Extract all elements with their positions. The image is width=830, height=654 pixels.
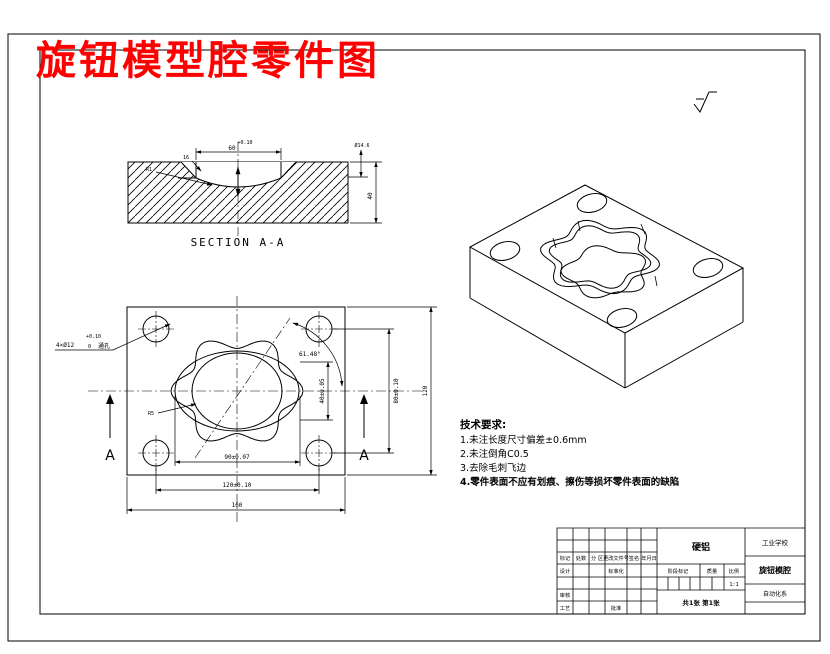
tb-part-name: 旋钮模腔 <box>758 565 791 575</box>
angle-label: 61.48° <box>299 351 321 358</box>
tech-req-item-3: 3.去除毛刺飞边 <box>460 462 527 474</box>
tb-mark: 标记 <box>560 554 570 562</box>
tb-zone: 分 区 <box>591 554 603 562</box>
dim-height-mid: 80±0.10 <box>393 378 400 404</box>
dim-height-inner: 40±0.05 <box>319 378 326 404</box>
section-dim-height: 40 <box>350 162 382 223</box>
iso-cavity-outline <box>528 215 673 299</box>
tb-change-doc: 更改文件号 <box>603 554 629 562</box>
tb-scale-value: 1:1 <box>729 582 738 588</box>
dim-width-mid: 120±0.10 <box>223 482 252 489</box>
tb-scale-label: 比例 <box>729 567 739 575</box>
dim-width-value: 60 <box>228 145 236 152</box>
tb-sheet-info: 共1张 第1张 <box>682 598 720 607</box>
surface-roughness-icon <box>694 92 717 112</box>
section-caption: SECTION A-A <box>191 236 286 249</box>
tb-school: 工业学校 <box>762 538 789 547</box>
tb-weight-label: 质量 <box>707 567 717 575</box>
isometric-view <box>470 185 743 388</box>
tb-process: 工艺 <box>560 605 570 612</box>
dim-width-tolerance: +0.10 <box>237 140 252 146</box>
page-title: 旋钮模型腔零件图 <box>36 37 380 84</box>
tb-material: 硬铝 <box>692 541 710 553</box>
holes-leader: +0.10 4×Ø12 0 通孔 <box>55 324 170 350</box>
iso-cavity-bottom <box>549 237 668 309</box>
holes-callout: 4×Ø12 <box>56 342 74 349</box>
tb-department: 自动化系 <box>763 590 787 598</box>
tb-stage-label: 阶段标记 <box>668 567 689 575</box>
tb-standardization: 标准化 <box>608 567 624 575</box>
cad-drawing: 旋钮模型腔零件图 +0.10 60 16 R1 <box>0 0 830 654</box>
front-radius-label: R5 <box>148 411 154 417</box>
holes-note: 通孔 <box>98 342 110 350</box>
tb-date: 年月日 <box>641 554 657 562</box>
dim-height-outer: 120 <box>422 385 429 396</box>
iso-bolt-holes <box>488 191 724 331</box>
section-view: +0.10 60 16 R1 Ø14.6 40 SECTION A-A <box>128 140 382 249</box>
drawing-sheet: 旋钮模型腔零件图 +0.10 60 16 R1 <box>0 0 830 654</box>
holes-tolerance-bottom: 0 <box>88 344 91 350</box>
tech-req-item-1: 1.未注长度尺寸偏差±0.6mm <box>460 434 587 446</box>
tb-approve: 批准 <box>611 604 621 612</box>
tb-signature: 签名 <box>629 554 639 562</box>
section-dim-step: Ø14.6 <box>348 142 370 177</box>
step-dim-label: Ø14.6 <box>354 142 369 149</box>
dim-width-outer: 160 <box>232 502 243 509</box>
section-dim-width: +0.10 60 <box>196 140 281 160</box>
front-view: 61.48° R5 +0.10 4×Ø12 0 通孔 A A 90±0.07 <box>55 296 437 522</box>
tb-design: 设计 <box>560 567 570 575</box>
section-label-right: A <box>359 448 369 464</box>
tech-req-heading: 技术要求: <box>460 418 506 431</box>
radius-label: R1 <box>146 167 152 173</box>
height-dim-label: 40 <box>367 192 374 200</box>
chamfer-label: 16 <box>183 155 189 161</box>
tb-count: 处数 <box>576 554 587 562</box>
dim-width-inner: 90±0.07 <box>224 454 250 461</box>
holes-tolerance-top: +0.10 <box>86 334 101 340</box>
tech-req-item-4: 4.零件表面不应有划痕、擦伤等损坏零件表面的缺陷 <box>460 476 679 488</box>
section-label-left: A <box>105 448 115 464</box>
tech-requirements: 技术要求: 1.未注长度尺寸偏差±0.6mm 2.未注倒角C0.5 3.去除毛刺… <box>460 418 679 488</box>
front-bottom-dims: 90±0.07 120±0.10 160 <box>127 396 345 514</box>
tb-check: 审核 <box>560 591 570 599</box>
angle-reference-line <box>195 318 290 458</box>
tech-req-item-2: 2.未注倒角C0.5 <box>460 448 529 460</box>
